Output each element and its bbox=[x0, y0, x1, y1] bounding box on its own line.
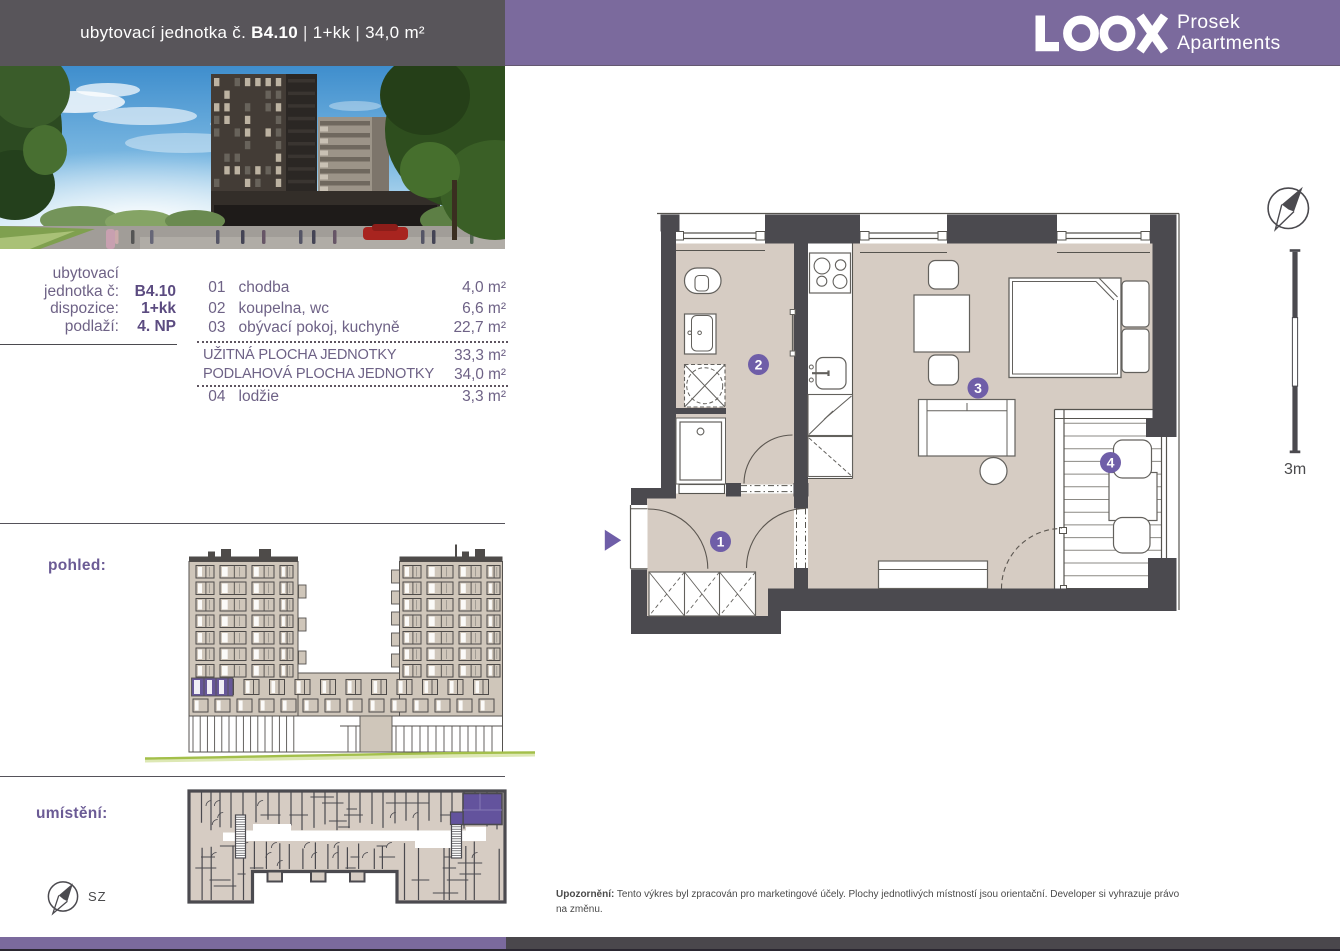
svg-text:1: 1 bbox=[717, 533, 725, 549]
svg-text:2: 2 bbox=[755, 356, 763, 372]
svg-text:4: 4 bbox=[1107, 454, 1115, 470]
svg-text:3: 3 bbox=[974, 380, 982, 396]
